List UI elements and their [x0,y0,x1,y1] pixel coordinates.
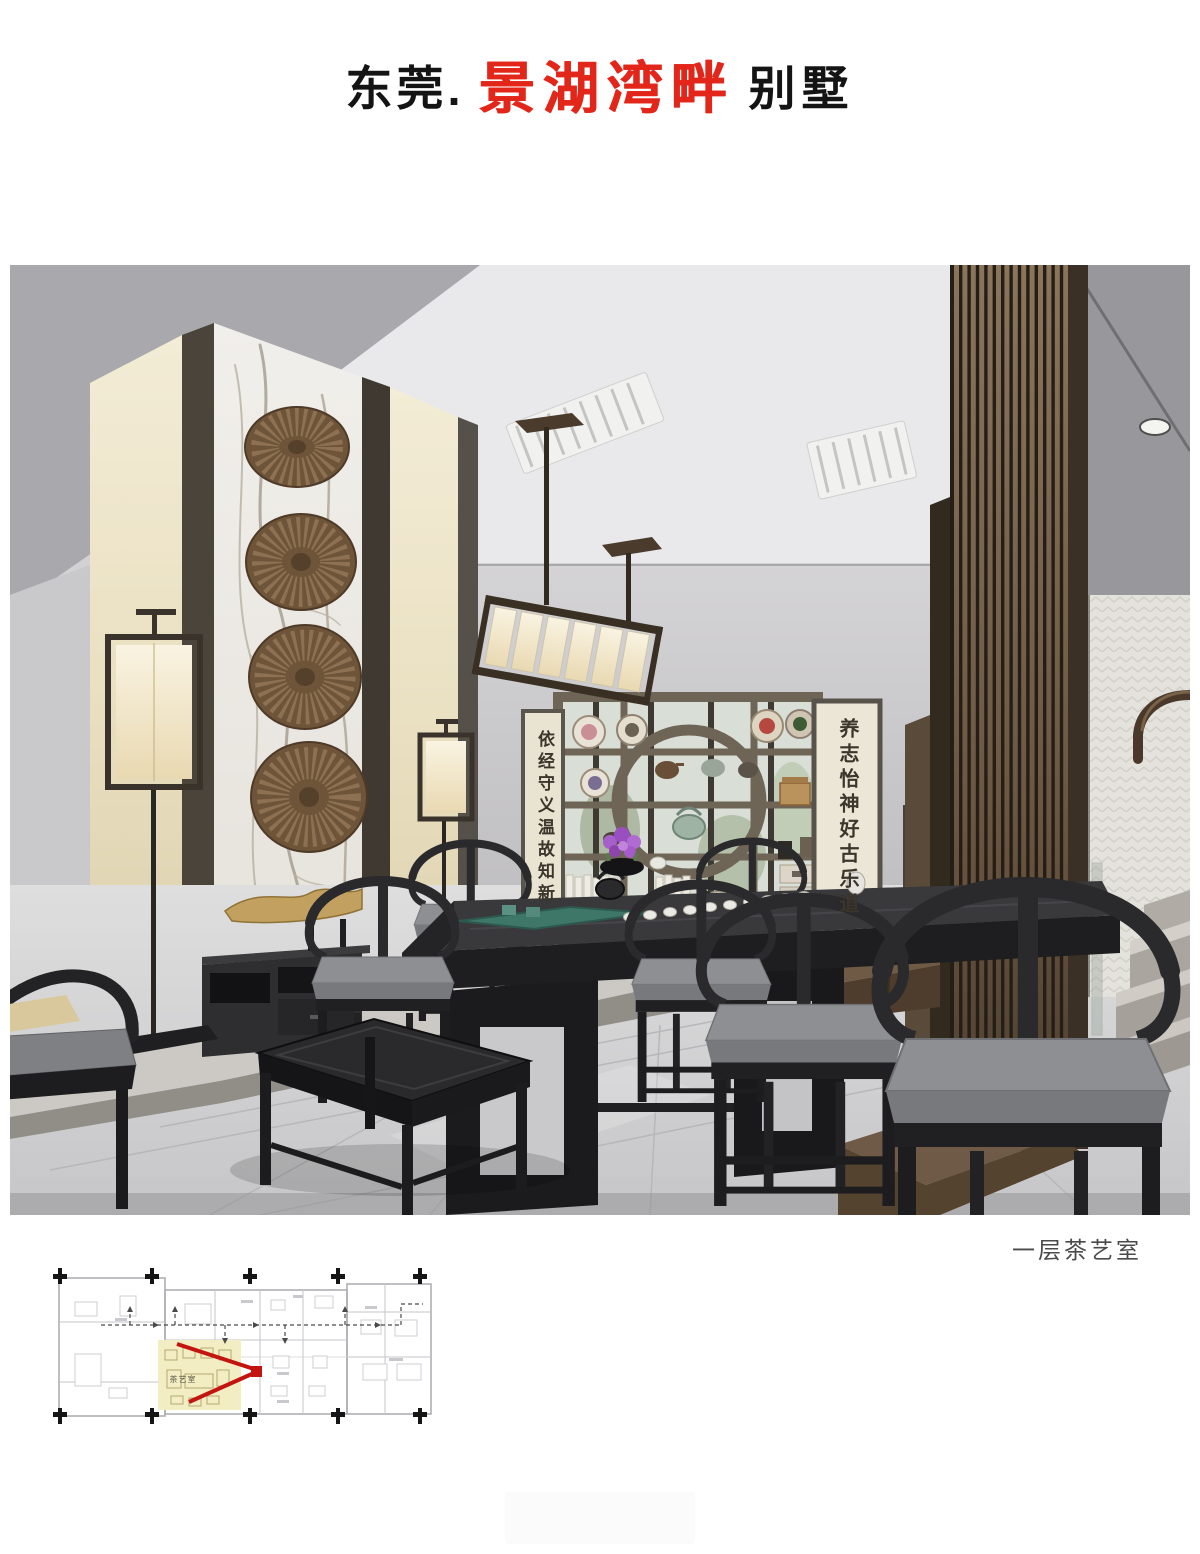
photo-caption: 一层茶艺室 [1012,1231,1142,1265]
plan-room-label: 茶艺室 [161,1374,205,1385]
title-city: 东莞. [345,62,464,115]
floor-plan: 茶艺室 [45,1262,445,1450]
scroll-text-right: 养志怡神好古乐道 [836,718,858,918]
interior-scene [10,265,1190,1215]
downlight-icon [1140,419,1170,435]
render-photo: 依经守义温故知新 养志怡神好古乐道 [10,265,1190,1215]
title-brand: 景湖湾畔 [479,57,735,120]
scroll-text-left: 依经守义温故知新 [535,730,554,906]
watermark [505,1492,695,1544]
page-title: 东莞.景湖湾畔别墅 [0,44,1200,125]
floor-plan-drawing [45,1262,445,1450]
calligraphy-scroll-left: 依经守义温故知新 [527,717,561,919]
calligraphy-scroll-right: 养志怡神好古乐道 [820,709,874,927]
title-villa: 别墅 [749,62,855,115]
